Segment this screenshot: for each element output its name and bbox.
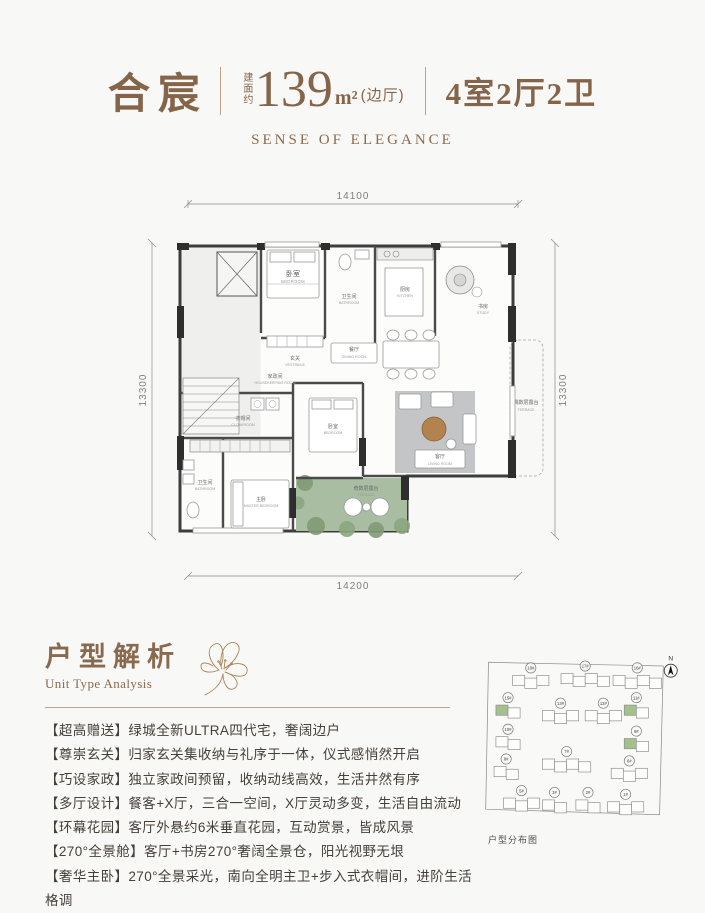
brand-name: 合宸 bbox=[108, 60, 208, 121]
svg-text:偶数层露台: 偶数层露台 bbox=[513, 399, 538, 406]
site-building-label: 18# bbox=[527, 666, 535, 671]
header-row: 合宸 建面约 139 m² (边厅) 4室2厅2卫 bbox=[0, 60, 705, 121]
analysis-bullet: 【奢华主卧】270°全景采光，南向全明主卫+步入式衣帽间，进阶生活格调 bbox=[45, 865, 475, 913]
brochure-page: 合宸 建面约 139 m² (边厅) 4室2厅2卫 SENSE OF ELEGA… bbox=[0, 0, 705, 878]
analysis-bullet: 【尊崇玄关】归家玄关集收纳与礼序于一体，仪式感悄然开启 bbox=[45, 743, 475, 767]
area-spec: 建面约 139 m² (边厅) bbox=[241, 68, 405, 112]
svg-text:玄关: 玄关 bbox=[290, 355, 300, 362]
svg-text:客厅: 客厅 bbox=[435, 453, 445, 460]
room-master-bedroom: 主卧 MASTER BEDROOM bbox=[231, 480, 289, 528]
site-building-label: 10# bbox=[505, 727, 513, 732]
svg-text:HOUSEKEEPING ROOM: HOUSEKEEPING ROOM bbox=[255, 381, 296, 385]
site-building-label: 9# bbox=[634, 729, 639, 734]
svg-text:MASTER BEDROOM: MASTER BEDROOM bbox=[244, 504, 279, 508]
room-spec: 4室2厅2卫 bbox=[446, 68, 598, 113]
svg-text:BATHROOM: BATHROOM bbox=[195, 487, 216, 491]
site-building-label: 6# bbox=[627, 759, 632, 764]
terrace-odd: 奇数层露台 TERRACE bbox=[292, 475, 411, 538]
site-building-label: 5# bbox=[519, 788, 524, 793]
site-building-label: 15# bbox=[505, 695, 513, 700]
analysis-bullet: 【巧设家政】独立家政间预留，收纳动线高效，生活井然有序 bbox=[45, 768, 475, 792]
svg-text:N: N bbox=[668, 655, 673, 662]
area-unit: m² bbox=[335, 87, 358, 110]
siteplan-svg: N 18#17#16#15#13#12#11#10#9#8#7#6#5#3#2#… bbox=[481, 653, 681, 825]
siteplan-caption: 户型分布图 bbox=[488, 833, 681, 846]
site-building-label: 13# bbox=[557, 701, 565, 706]
elevator bbox=[217, 252, 257, 296]
site-building-label: 1# bbox=[623, 792, 628, 797]
svg-text:TERRACE: TERRACE bbox=[357, 493, 375, 497]
site-building-label: 12# bbox=[600, 701, 608, 706]
analysis-bullet: 【环幕花园】客厅外悬约6米垂直花园，互动赏景，皆成风景 bbox=[45, 816, 475, 840]
svg-text:BATHROOM: BATHROOM bbox=[339, 301, 360, 305]
svg-text:衣帽间: 衣帽间 bbox=[235, 415, 250, 422]
analysis-bullets: 【超高赠送】绿城全新ULTRA四代宅，奢阔边户【尊崇玄关】归家玄关集收纳与礼序于… bbox=[45, 719, 475, 913]
analysis-section: 户型解析 Unit Type Analysis 【超高赠送】绿城全新ULTRA四… bbox=[45, 644, 475, 913]
analysis-divider bbox=[45, 707, 450, 708]
site-building-label: 2# bbox=[586, 790, 591, 795]
site-building-label: 3# bbox=[552, 790, 557, 795]
floor-plan-svg: 14100 14200 13300 13300 bbox=[133, 188, 578, 592]
dimension-left: 13300 bbox=[138, 239, 156, 540]
tree bbox=[368, 522, 384, 538]
area-note: (边厅) bbox=[361, 84, 405, 105]
header-subtitle: SENSE OF ELEGANCE bbox=[0, 132, 705, 149]
svg-text:LIVING ROOM: LIVING ROOM bbox=[428, 462, 452, 466]
svg-text:VESTIBULE: VESTIBULE bbox=[285, 363, 305, 367]
tree bbox=[307, 517, 325, 535]
analysis-subtitle: Unit Type Analysis bbox=[45, 676, 181, 692]
svg-text:BEDROOM: BEDROOM bbox=[324, 431, 343, 435]
area-prefix: 建面约 bbox=[241, 72, 252, 106]
svg-text:14200: 14200 bbox=[337, 581, 370, 592]
site-building-label: 11# bbox=[633, 695, 640, 700]
site-building-label: 17# bbox=[582, 664, 590, 669]
analysis-title: 户型解析 bbox=[45, 644, 181, 671]
svg-text:BEDROOM: BEDROOM bbox=[281, 279, 305, 284]
svg-text:主卧: 主卧 bbox=[256, 496, 266, 503]
lily-flower-icon bbox=[191, 636, 255, 698]
svg-text:卫生间: 卫生间 bbox=[341, 293, 356, 300]
svg-text:STUDY: STUDY bbox=[477, 311, 490, 315]
dimension-bottom: 14200 bbox=[184, 572, 522, 592]
svg-text:KITCHEN: KITCHEN bbox=[397, 294, 413, 298]
svg-text:卧室: 卧室 bbox=[328, 423, 338, 430]
header: 合宸 建面约 139 m² (边厅) 4室2厅2卫 SENSE OF ELEGA… bbox=[0, 60, 705, 149]
floor-plan: 14100 14200 13300 13300 bbox=[133, 188, 578, 592]
analysis-bullet: 【多厅设计】餐客+X厅，三合一空间，X厅灵动多变，生活自由流动 bbox=[45, 792, 475, 816]
dimension-right: 13300 bbox=[551, 239, 569, 540]
analysis-bullet: 【270°全景舱】客厅+书房270°奢阔全景仓，阳光视野无垠 bbox=[45, 840, 475, 864]
svg-text:DINING ROOM: DINING ROOM bbox=[342, 355, 367, 359]
round-table bbox=[422, 417, 446, 441]
svg-text:卫生间: 卫生间 bbox=[197, 479, 212, 486]
siteplan: N 18#17#16#15#13#12#11#10#9#8#7#6#5#3#2#… bbox=[481, 653, 681, 846]
svg-text:卧室: 卧室 bbox=[286, 269, 300, 278]
svg-text:餐厅: 餐厅 bbox=[349, 346, 359, 353]
svg-text:TERRACE: TERRACE bbox=[517, 408, 535, 412]
room-living: 客厅 LIVING ROOM bbox=[395, 391, 476, 473]
header-divider bbox=[425, 67, 426, 115]
dimension-top: 14100 bbox=[184, 191, 522, 208]
room-bedroom-top: 卧室 BEDROOM bbox=[267, 250, 319, 298]
svg-text:13300: 13300 bbox=[558, 374, 569, 407]
svg-text:13300: 13300 bbox=[138, 374, 149, 407]
tree bbox=[339, 521, 355, 537]
tree bbox=[394, 518, 410, 534]
svg-text:CLOAKROOM: CLOAKROOM bbox=[231, 423, 254, 427]
area-value: 139 bbox=[255, 68, 333, 112]
svg-text:奇数层露台: 奇数层露台 bbox=[353, 485, 378, 492]
svg-text:书房: 书房 bbox=[478, 303, 488, 310]
north-arrow-icon: N bbox=[664, 655, 677, 677]
svg-text:14100: 14100 bbox=[337, 191, 370, 202]
analysis-bullet: 【超高赠送】绿城全新ULTRA四代宅，奢阔边户 bbox=[45, 719, 475, 743]
site-building-label: 16# bbox=[634, 666, 642, 671]
analysis-header: 户型解析 Unit Type Analysis bbox=[45, 644, 475, 698]
site-building-label: 7# bbox=[564, 749, 569, 754]
site-building-label: 8# bbox=[504, 757, 509, 762]
svg-text:家政间: 家政间 bbox=[267, 373, 282, 380]
header-divider bbox=[220, 67, 221, 115]
svg-text:厨房: 厨房 bbox=[400, 286, 410, 293]
room-bedroom-south: 卧室 BEDROOM bbox=[309, 398, 357, 452]
